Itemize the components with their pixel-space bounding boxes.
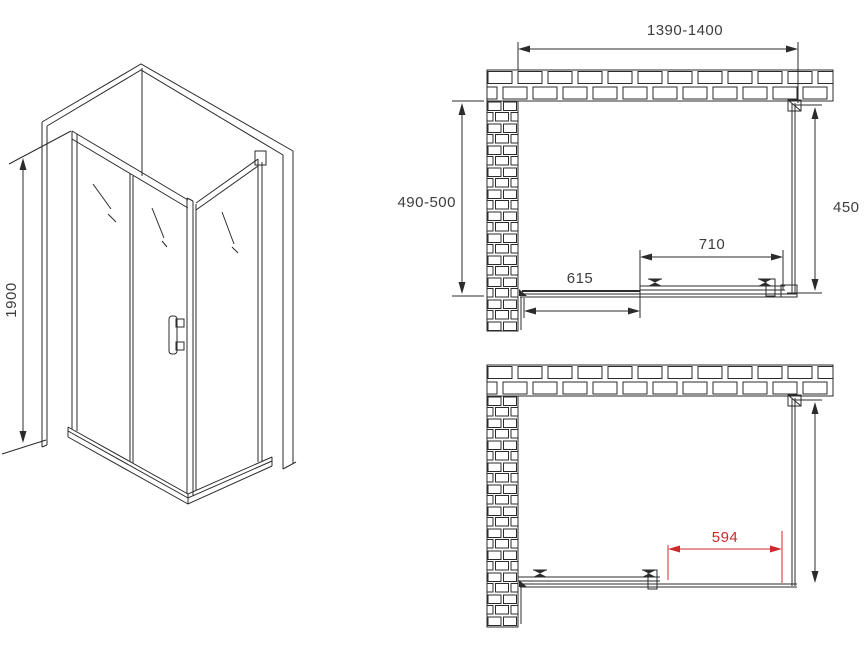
- bottom-plan-view: 594: [487, 365, 833, 627]
- enclosure-frame: [72, 131, 266, 496]
- wall-top: [487, 70, 833, 101]
- door-handle: [169, 316, 184, 354]
- dim-height: 1900: [2, 131, 71, 454]
- front-assembly-open: [518, 395, 801, 624]
- arrow-right-icon: [770, 546, 782, 553]
- top-plan-view: 1390-1400 490-500 450 710: [397, 22, 859, 331]
- shower-enclosure-technical-drawing: 1900: [0, 0, 864, 649]
- arrow-left-icon: [668, 546, 680, 553]
- dim-side-panel-label: 450: [833, 199, 860, 216]
- front-assembly: [519, 100, 801, 330]
- arrow-down-icon: [20, 431, 27, 443]
- wall-left: [487, 396, 518, 627]
- door-roller: [648, 279, 662, 286]
- arrow-down-icon: [459, 282, 466, 294]
- arrow-right-icon: [628, 308, 640, 315]
- arrow-right-icon: [771, 254, 783, 261]
- dim-height-label: 1900: [3, 282, 20, 317]
- arrow-up-icon: [459, 103, 466, 115]
- dim-side-panel: 450: [787, 105, 860, 293]
- drawing-canvas: 1900: [0, 0, 864, 649]
- dim-sliding-door-label: 710: [699, 236, 726, 253]
- arrow-left-icon: [524, 308, 536, 315]
- door-roller: [758, 279, 772, 286]
- door-roller: [642, 570, 656, 577]
- isometric-view: 1900: [2, 64, 296, 504]
- wall-left: [487, 101, 518, 331]
- dim-width-label: 1390-1400: [647, 22, 723, 39]
- dim-fixed-panel-label: 615: [567, 270, 594, 287]
- arrow-up-icon: [812, 402, 819, 414]
- door-roller: [533, 570, 547, 577]
- arrow-down-icon: [812, 279, 819, 291]
- handle-bracket: [766, 279, 775, 296]
- dim-side-depth: [795, 400, 822, 583]
- dim-opening-label: 594: [712, 529, 739, 546]
- arrow-left-icon: [640, 254, 652, 261]
- wall-top: [487, 365, 833, 396]
- arrow-up-icon: [20, 158, 27, 170]
- dim-sliding-door: 710: [640, 236, 783, 318]
- arrow-right-icon: [786, 46, 798, 53]
- dim-opening: 594: [668, 529, 782, 583]
- wall-clamp: [255, 151, 266, 165]
- side-top-rail: [196, 159, 258, 203]
- dim-depth: 490-500: [397, 101, 484, 296]
- arrow-down-icon: [812, 571, 819, 583]
- dim-depth-label: 490-500: [397, 194, 456, 211]
- arrow-up-icon: [812, 107, 819, 119]
- shower-tray: [68, 427, 272, 504]
- arrow-left-icon: [518, 46, 530, 53]
